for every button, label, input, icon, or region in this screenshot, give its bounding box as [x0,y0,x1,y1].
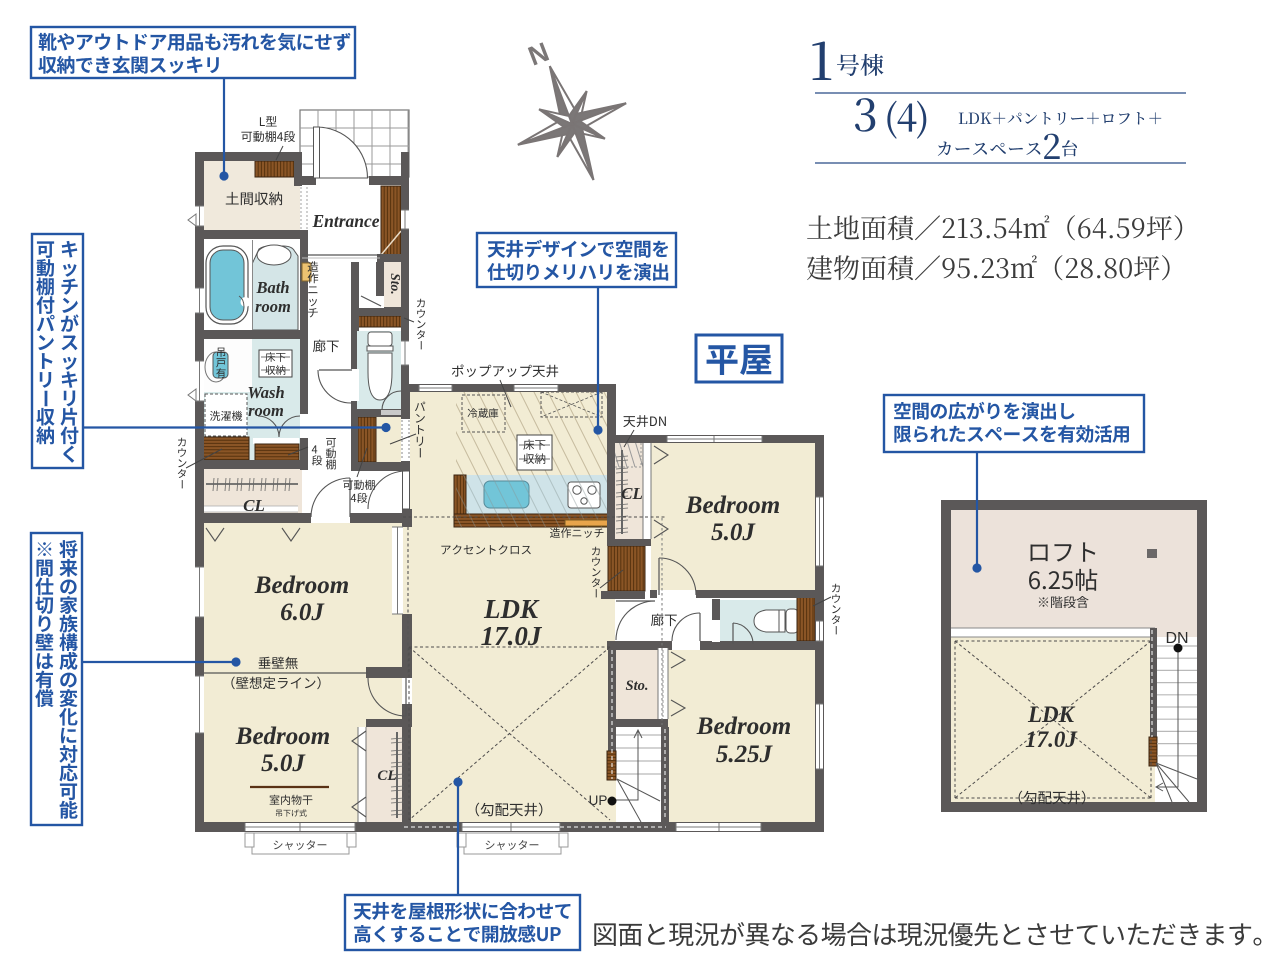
svg-text:Entrance: Entrance [311,211,379,231]
svg-text:Sto.: Sto. [626,678,649,694]
svg-text:6.0J: 6.0J [280,599,325,626]
svg-text:CL: CL [377,768,396,784]
svg-text:Wash: Wash [247,383,284,402]
svg-text:5.25J: 5.25J [716,741,774,768]
svg-text:Bedroom: Bedroom [685,492,780,519]
svg-text:Sto.: Sto. [388,273,403,294]
svg-text:Bath: Bath [255,278,289,297]
svg-text:5.0J: 5.0J [711,519,756,546]
svg-text:17.0J: 17.0J [1025,727,1078,752]
svg-text:LDK: LDK [1027,702,1076,727]
svg-text:5.0J: 5.0J [261,750,306,777]
svg-text:Bedroom: Bedroom [696,713,791,740]
svg-text:UP: UP [589,793,608,808]
svg-text:CL: CL [243,496,265,515]
svg-text:Bedroom: Bedroom [254,572,349,599]
svg-text:Bedroom: Bedroom [235,723,330,750]
svg-text:room: room [248,401,284,420]
svg-text:LDK: LDK [483,594,540,624]
svg-text:CL: CL [621,484,643,503]
svg-text:room: room [255,297,291,316]
svg-text:17.0J: 17.0J [481,621,543,651]
